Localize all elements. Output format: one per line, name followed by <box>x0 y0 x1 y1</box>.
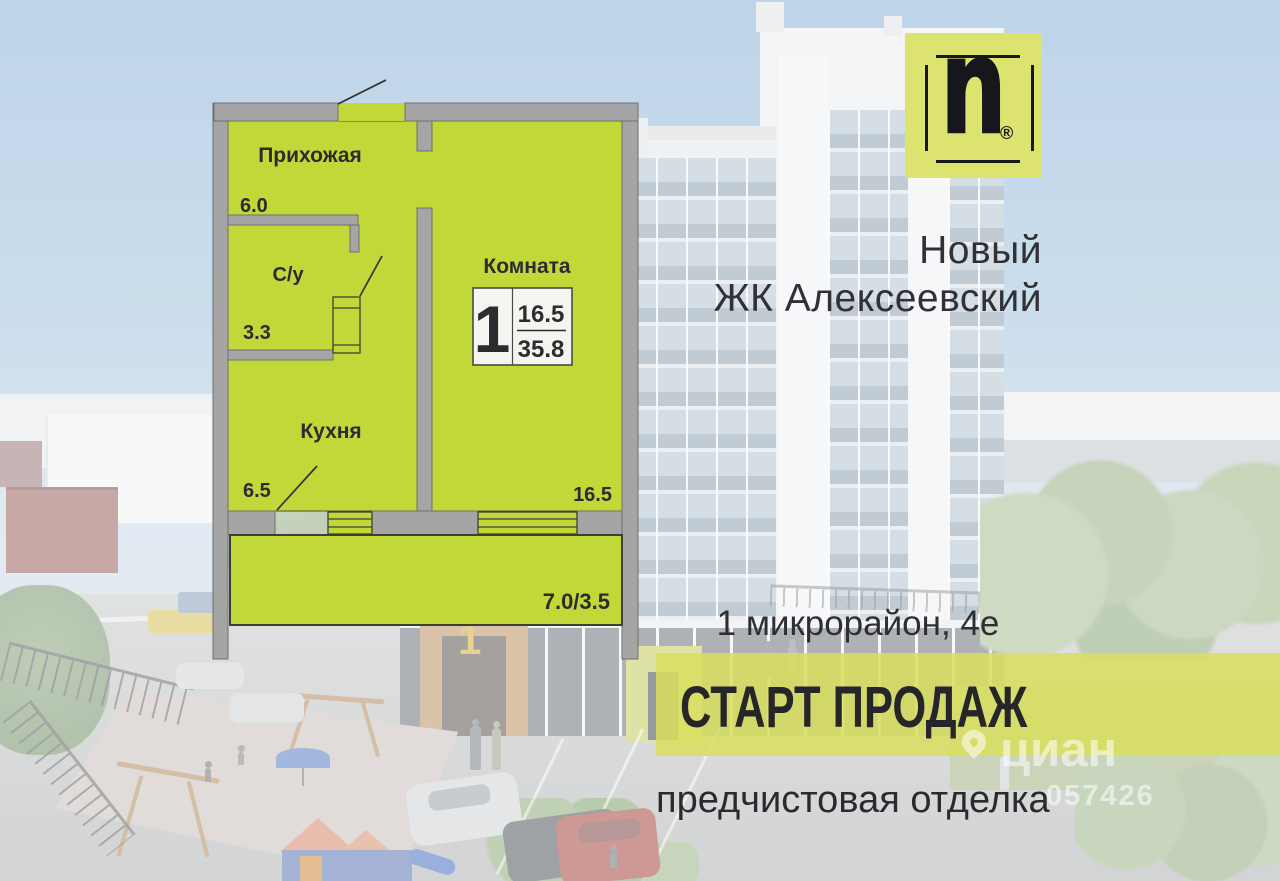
registered-mark: ® <box>1000 123 1013 144</box>
room-label-hallway: Прихожая <box>258 144 362 167</box>
room-label-bathroom: С/у <box>272 264 304 286</box>
room-label-kitchen: Кухня <box>300 420 361 443</box>
wall-entrance-stub <box>417 121 432 151</box>
wall-right <box>622 103 638 659</box>
project-title: Новый ЖК Алексеевский <box>714 227 1042 323</box>
badge-total-area: 35.8 <box>518 336 565 363</box>
wall-bottom <box>228 511 275 535</box>
logo-frame-right <box>1031 65 1034 151</box>
balcony-area-label: 7.0/3.5 <box>543 589 610 614</box>
watermark-brand: циан <box>1000 722 1117 778</box>
finish-note: предчистовая отделка <box>656 779 1050 822</box>
room-label-room: Комната <box>483 255 571 278</box>
wall-left <box>213 103 228 659</box>
area-hallway: 6.0 <box>240 195 268 217</box>
floor-plan: 1 16.5 35.8 Прихожая 6.0 С/у 3.3 Кухня 6… <box>185 60 665 675</box>
badge-living-area: 16.5 <box>518 301 565 328</box>
wall-bottom <box>372 511 478 535</box>
wall-top-right <box>405 103 638 121</box>
location-label: 1 микрорайон, 4е <box>658 604 1058 644</box>
area-bathroom: 3.3 <box>243 322 271 344</box>
watermark-number: 057426 <box>1046 780 1155 813</box>
wall-interior <box>417 208 432 511</box>
apartment-badge: 1 16.5 35.8 <box>473 288 572 366</box>
wall-bath-stub <box>350 225 359 252</box>
kitchen-window <box>328 512 372 534</box>
title-line-1: Новый <box>714 227 1042 275</box>
entrance-door-swing <box>338 80 386 104</box>
room-window <box>478 512 577 534</box>
poster: 1 <box>0 0 1280 881</box>
developer-logo: n ® <box>905 33 1042 178</box>
entrance-opening <box>338 103 405 121</box>
vent-shaft <box>333 297 360 353</box>
wall-bath-bottom <box>228 350 333 360</box>
wall-bottom <box>577 511 622 535</box>
area-kitchen: 6.5 <box>243 480 271 502</box>
wall-top-left <box>214 103 338 121</box>
area-room: 16.5 <box>573 484 612 506</box>
badge-rooms-count: 1 <box>474 292 511 366</box>
title-line-2: ЖК Алексеевский <box>714 275 1042 323</box>
